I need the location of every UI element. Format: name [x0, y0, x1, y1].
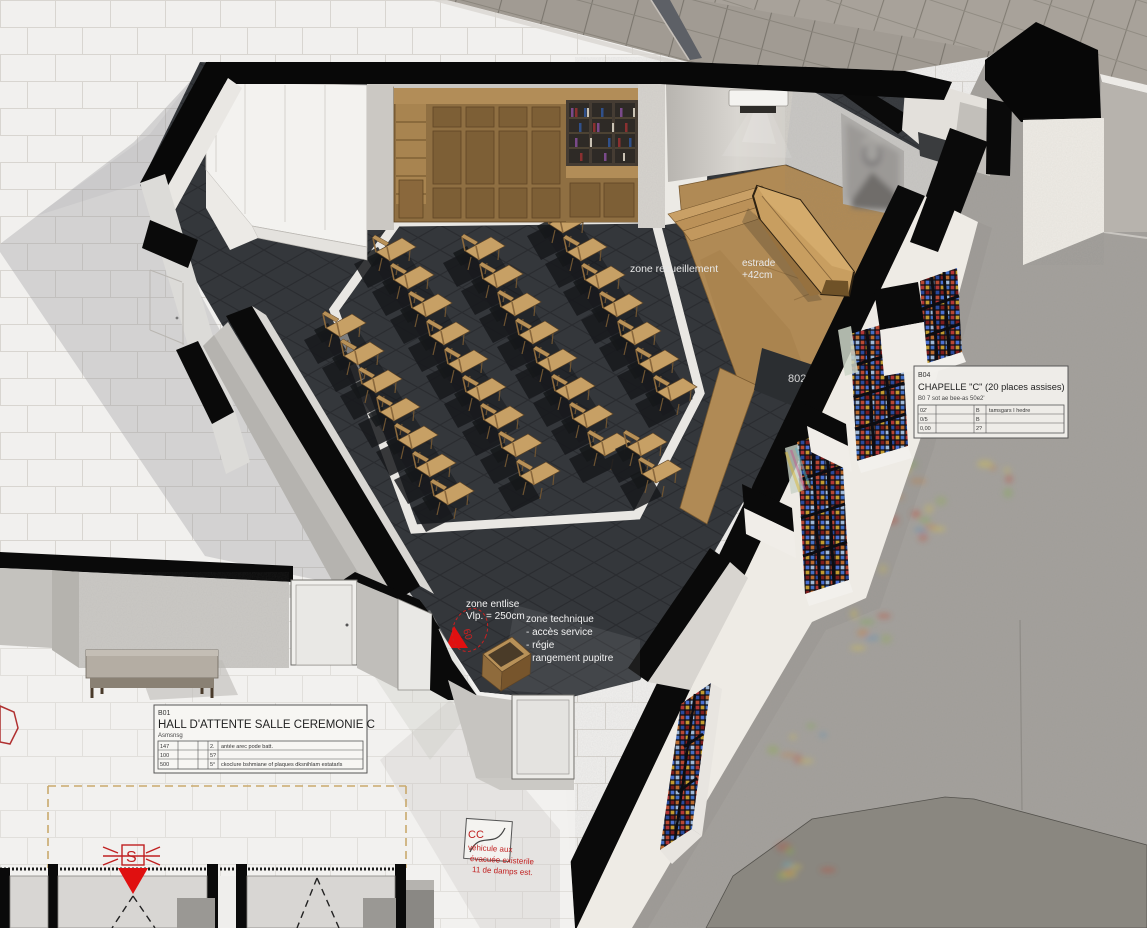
svg-text:antée arec pode batt.: antée arec pode batt.: [221, 744, 273, 750]
svg-text:5°: 5°: [210, 762, 215, 768]
svg-text:500: 500: [160, 762, 169, 768]
svg-text:2?: 2?: [976, 426, 982, 432]
svg-text:B0 7 sot ae bee-as 50e2': B0 7 sot ae bee-as 50e2': [918, 396, 985, 402]
svg-text:+42cm: +42cm: [742, 270, 772, 281]
svg-text:tamsgars I hedre: tamsgars I hedre: [989, 408, 1030, 414]
svg-text:0,00: 0,00: [920, 426, 931, 432]
svg-text:estrade: estrade: [742, 258, 776, 269]
svg-text:ckoclure bshmiane of plaques d: ckoclure bshmiane of plaques dksnihlam e…: [221, 762, 343, 768]
svg-text:B: B: [976, 408, 980, 414]
svg-text:- régie: - régie: [526, 640, 555, 651]
svg-text:02': 02': [920, 408, 927, 414]
svg-text:B01: B01: [158, 710, 171, 717]
svg-text:- rangement pupitre: - rangement pupitre: [526, 653, 614, 664]
svg-text:S: S: [126, 849, 137, 866]
svg-text:zone technique: zone technique: [526, 614, 594, 625]
svg-text:5?: 5?: [210, 753, 216, 759]
svg-text:Asmsnsg: Asmsnsg: [158, 733, 183, 739]
svg-text:HALL D'ATTENTE SALLE CEREMONIE: HALL D'ATTENTE SALLE CEREMONIE C: [158, 719, 375, 731]
svg-text:zone recueillement: zone recueillement: [630, 263, 718, 275]
svg-text:2.: 2.: [210, 744, 215, 750]
svg-text:147: 147: [160, 744, 169, 750]
svg-text:- accès service: - accès service: [526, 627, 593, 638]
svg-text:Vlp. = 250cm: Vlp. = 250cm: [466, 611, 525, 622]
svg-text:0/5: 0/5: [920, 417, 928, 423]
svg-text:CHAPELLE "C" (20 places assise: CHAPELLE "C" (20 places assises): [918, 382, 1065, 392]
svg-text:CC: CC: [468, 829, 484, 841]
svg-text:100: 100: [160, 753, 169, 759]
svg-text:B: B: [976, 417, 980, 423]
svg-text:B04: B04: [918, 372, 931, 379]
